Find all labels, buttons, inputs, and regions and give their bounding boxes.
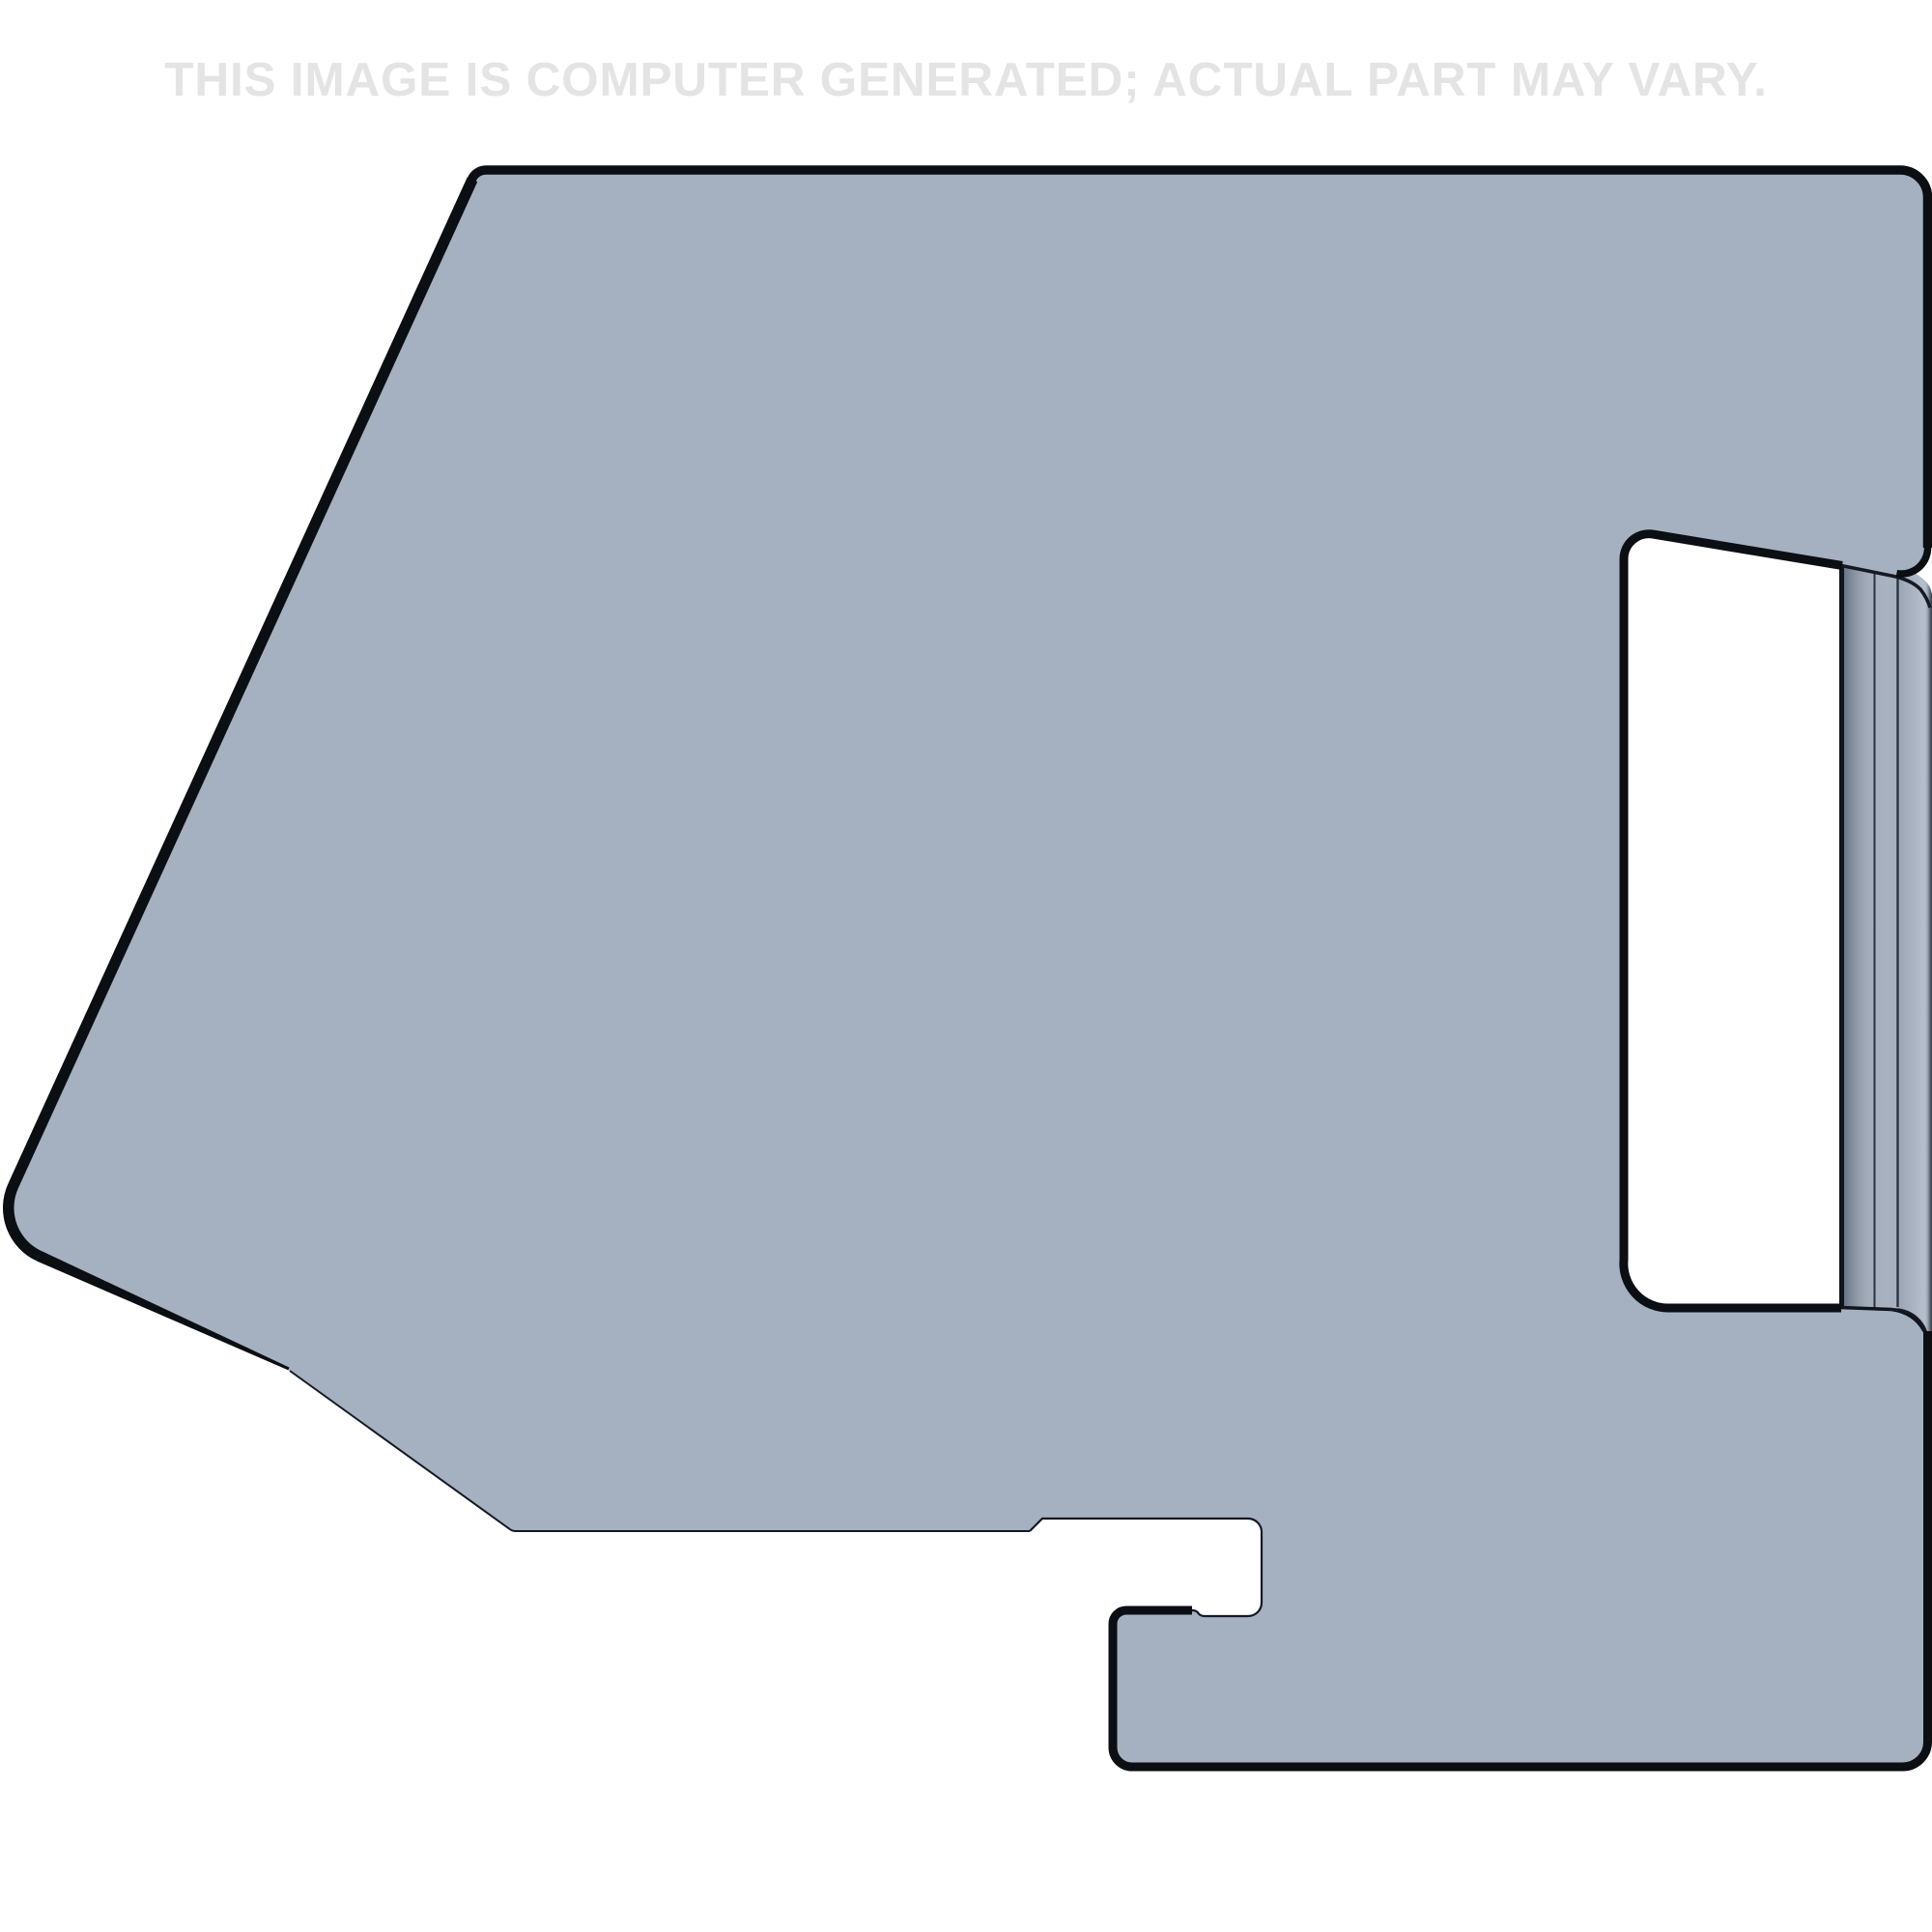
svg-text:THIS IMAGE IS COMPUTER GENERAT: THIS IMAGE IS COMPUTER GENERATED; ACTUAL… <box>164 53 1767 106</box>
